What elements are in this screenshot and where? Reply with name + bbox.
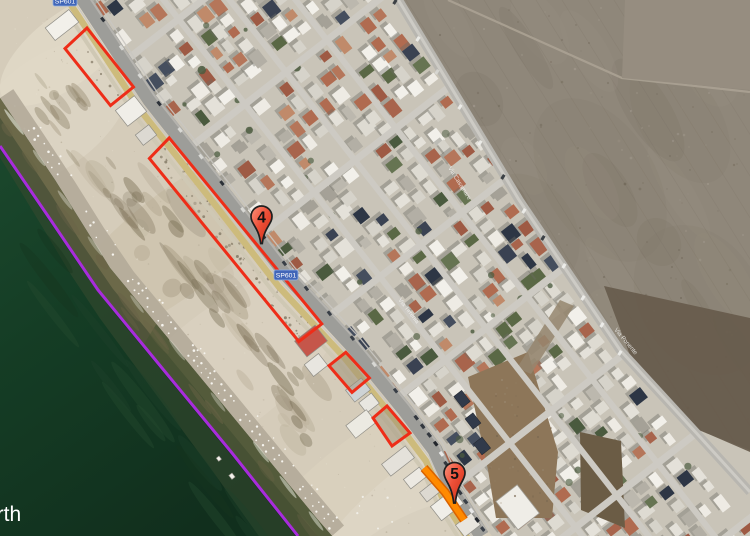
svg-text:arth: arth — [0, 503, 21, 526]
svg-text:SP601: SP601 — [55, 0, 76, 6]
svg-text:SP601: SP601 — [276, 273, 297, 280]
svg-text:5: 5 — [450, 466, 459, 483]
svg-text:4: 4 — [257, 210, 266, 227]
